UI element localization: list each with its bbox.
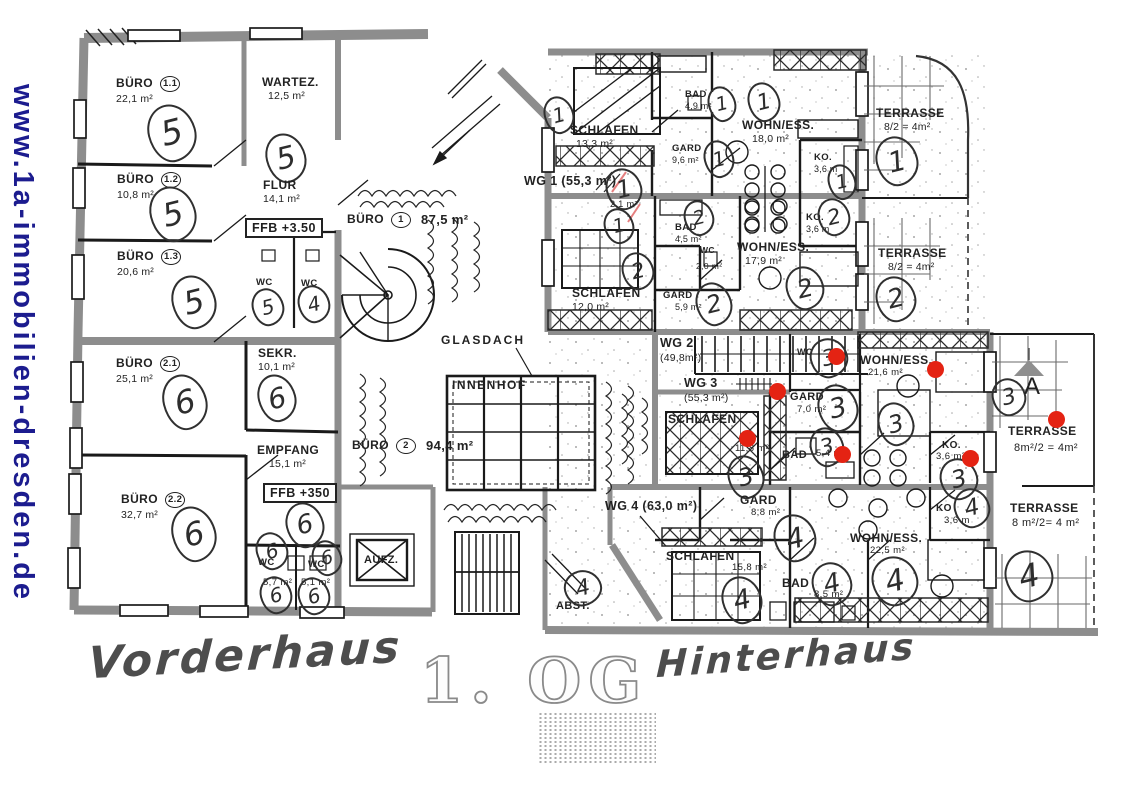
area-wg4-schlafen: 15,8 m² bbox=[732, 563, 767, 573]
level-label-ffb-350-bottom: FFB +350 bbox=[263, 483, 337, 503]
unit-marker-dot bbox=[828, 348, 845, 365]
room-label-wc-upper-left: WC bbox=[256, 278, 273, 288]
room-label-wg2-wc: WC bbox=[700, 246, 715, 255]
room-label-buero-2: BÜRO294,4 m² bbox=[352, 438, 474, 454]
room-label-wg4-bad: BAD bbox=[782, 577, 809, 590]
unit-marker-dot bbox=[769, 383, 786, 400]
room-label-terrasse-1: TERRASSE 8/2 = 4m² bbox=[876, 107, 945, 134]
room-label-wg1-schlafen: SCHLAFEN 13,3 m² bbox=[570, 124, 639, 151]
floor-title: 1. OG bbox=[420, 644, 648, 717]
room-label-buero-1-1: BÜRO1.1 22,1 m² bbox=[116, 76, 180, 106]
room-label-wg2-wohness: WOHN/ESS. 17,9 m² bbox=[737, 241, 809, 268]
room-label-wg1-wohness: WOHN/ESS. 18,0 m² bbox=[742, 119, 814, 146]
room-label-aufzug: AUFZ. bbox=[364, 554, 398, 566]
stamp-blob bbox=[538, 712, 656, 764]
area-terrasse-4: 8 m²/2= 4 m² bbox=[1012, 517, 1079, 529]
room-label-wg3-wohness: WOHN/ESS. bbox=[860, 354, 932, 367]
room-label-flur: FLUR 14,1 m² bbox=[263, 179, 300, 206]
variant-letter-a: A bbox=[1024, 374, 1040, 400]
room-label-wg4-wohness: WOHN/ESS. bbox=[850, 532, 922, 545]
label-innenhof: INNENHOF bbox=[452, 379, 527, 392]
room-label-wg3-bad: BAD bbox=[782, 449, 807, 461]
room-label-wg4-schlafen: SCHLAFEN bbox=[666, 550, 735, 563]
room-label-wartezimmer: WARTEZ. 12,5 m² bbox=[262, 76, 319, 103]
room-label-wg2-schlafen: SCHLAFEN 12,0 m² bbox=[572, 287, 641, 314]
unit-marker-dot bbox=[1048, 411, 1065, 428]
room-label-wg3-schlafen: SCHLAFEN bbox=[668, 413, 737, 426]
unit-label-wg3: WG 3 (55,3 m²) bbox=[684, 377, 728, 404]
level-label-ffb-350-top: FFB +3.50 bbox=[245, 218, 323, 238]
room-label-wg4-gard: GARD bbox=[740, 494, 777, 507]
floorplan-page: www.1a-immobilien-dresden.de Vorderhaus … bbox=[0, 0, 1132, 800]
spiral-staircase bbox=[340, 249, 434, 341]
unit-label-wg1: WG 1 (55,3 m²) bbox=[524, 175, 616, 189]
unit-marker-dot bbox=[834, 446, 851, 463]
room-label-buero-1-3: BÜRO1.3 20,6 m² bbox=[117, 249, 181, 279]
room-label-wg4-kochnische: KO bbox=[936, 503, 952, 514]
room-label-empfang: EMPFANG 15,1 m² bbox=[257, 444, 319, 471]
room-label-sekretariat: SEKR. 10,1 m² bbox=[258, 347, 297, 374]
area-wg3-wohness: 21,6 m² bbox=[868, 368, 903, 378]
stairs-bottom bbox=[455, 532, 519, 614]
room-label-terrasse-2: TERRASSE 8/2 = 4m² bbox=[878, 247, 947, 274]
room-label-terrasse-4: TERRASSE bbox=[1010, 502, 1079, 515]
unit-label-wg2: WG 2 (49,8m²) bbox=[660, 337, 701, 364]
room-label-terrasse-3: TERRASSE bbox=[1008, 425, 1077, 438]
area-wg4-gard: 8,8 m² bbox=[751, 508, 780, 518]
room-label-buero-1: BÜRO187,5 m² bbox=[347, 212, 469, 228]
unit-marker-dot bbox=[739, 430, 756, 447]
room-label-wg3-kochnische: KO. bbox=[942, 440, 961, 451]
area-terrasse-3: 8m²/2 = 4m² bbox=[1014, 442, 1078, 454]
area-wg4-wohness: 22,5 m² bbox=[870, 546, 905, 556]
website-watermark: www.1a-immobilien-dresden.de bbox=[6, 84, 39, 640]
area-wg2-wc: 2,0 m² bbox=[696, 262, 723, 271]
unit-label-wg4: WG 4 (63,0 m²) bbox=[605, 500, 697, 514]
label-glasdach: GLASDACH bbox=[441, 334, 525, 347]
unit-marker-dot bbox=[962, 450, 979, 467]
unit-marker-dot bbox=[927, 361, 944, 378]
room-label-wg1-gard: GARD 9,6 m² bbox=[672, 144, 702, 166]
